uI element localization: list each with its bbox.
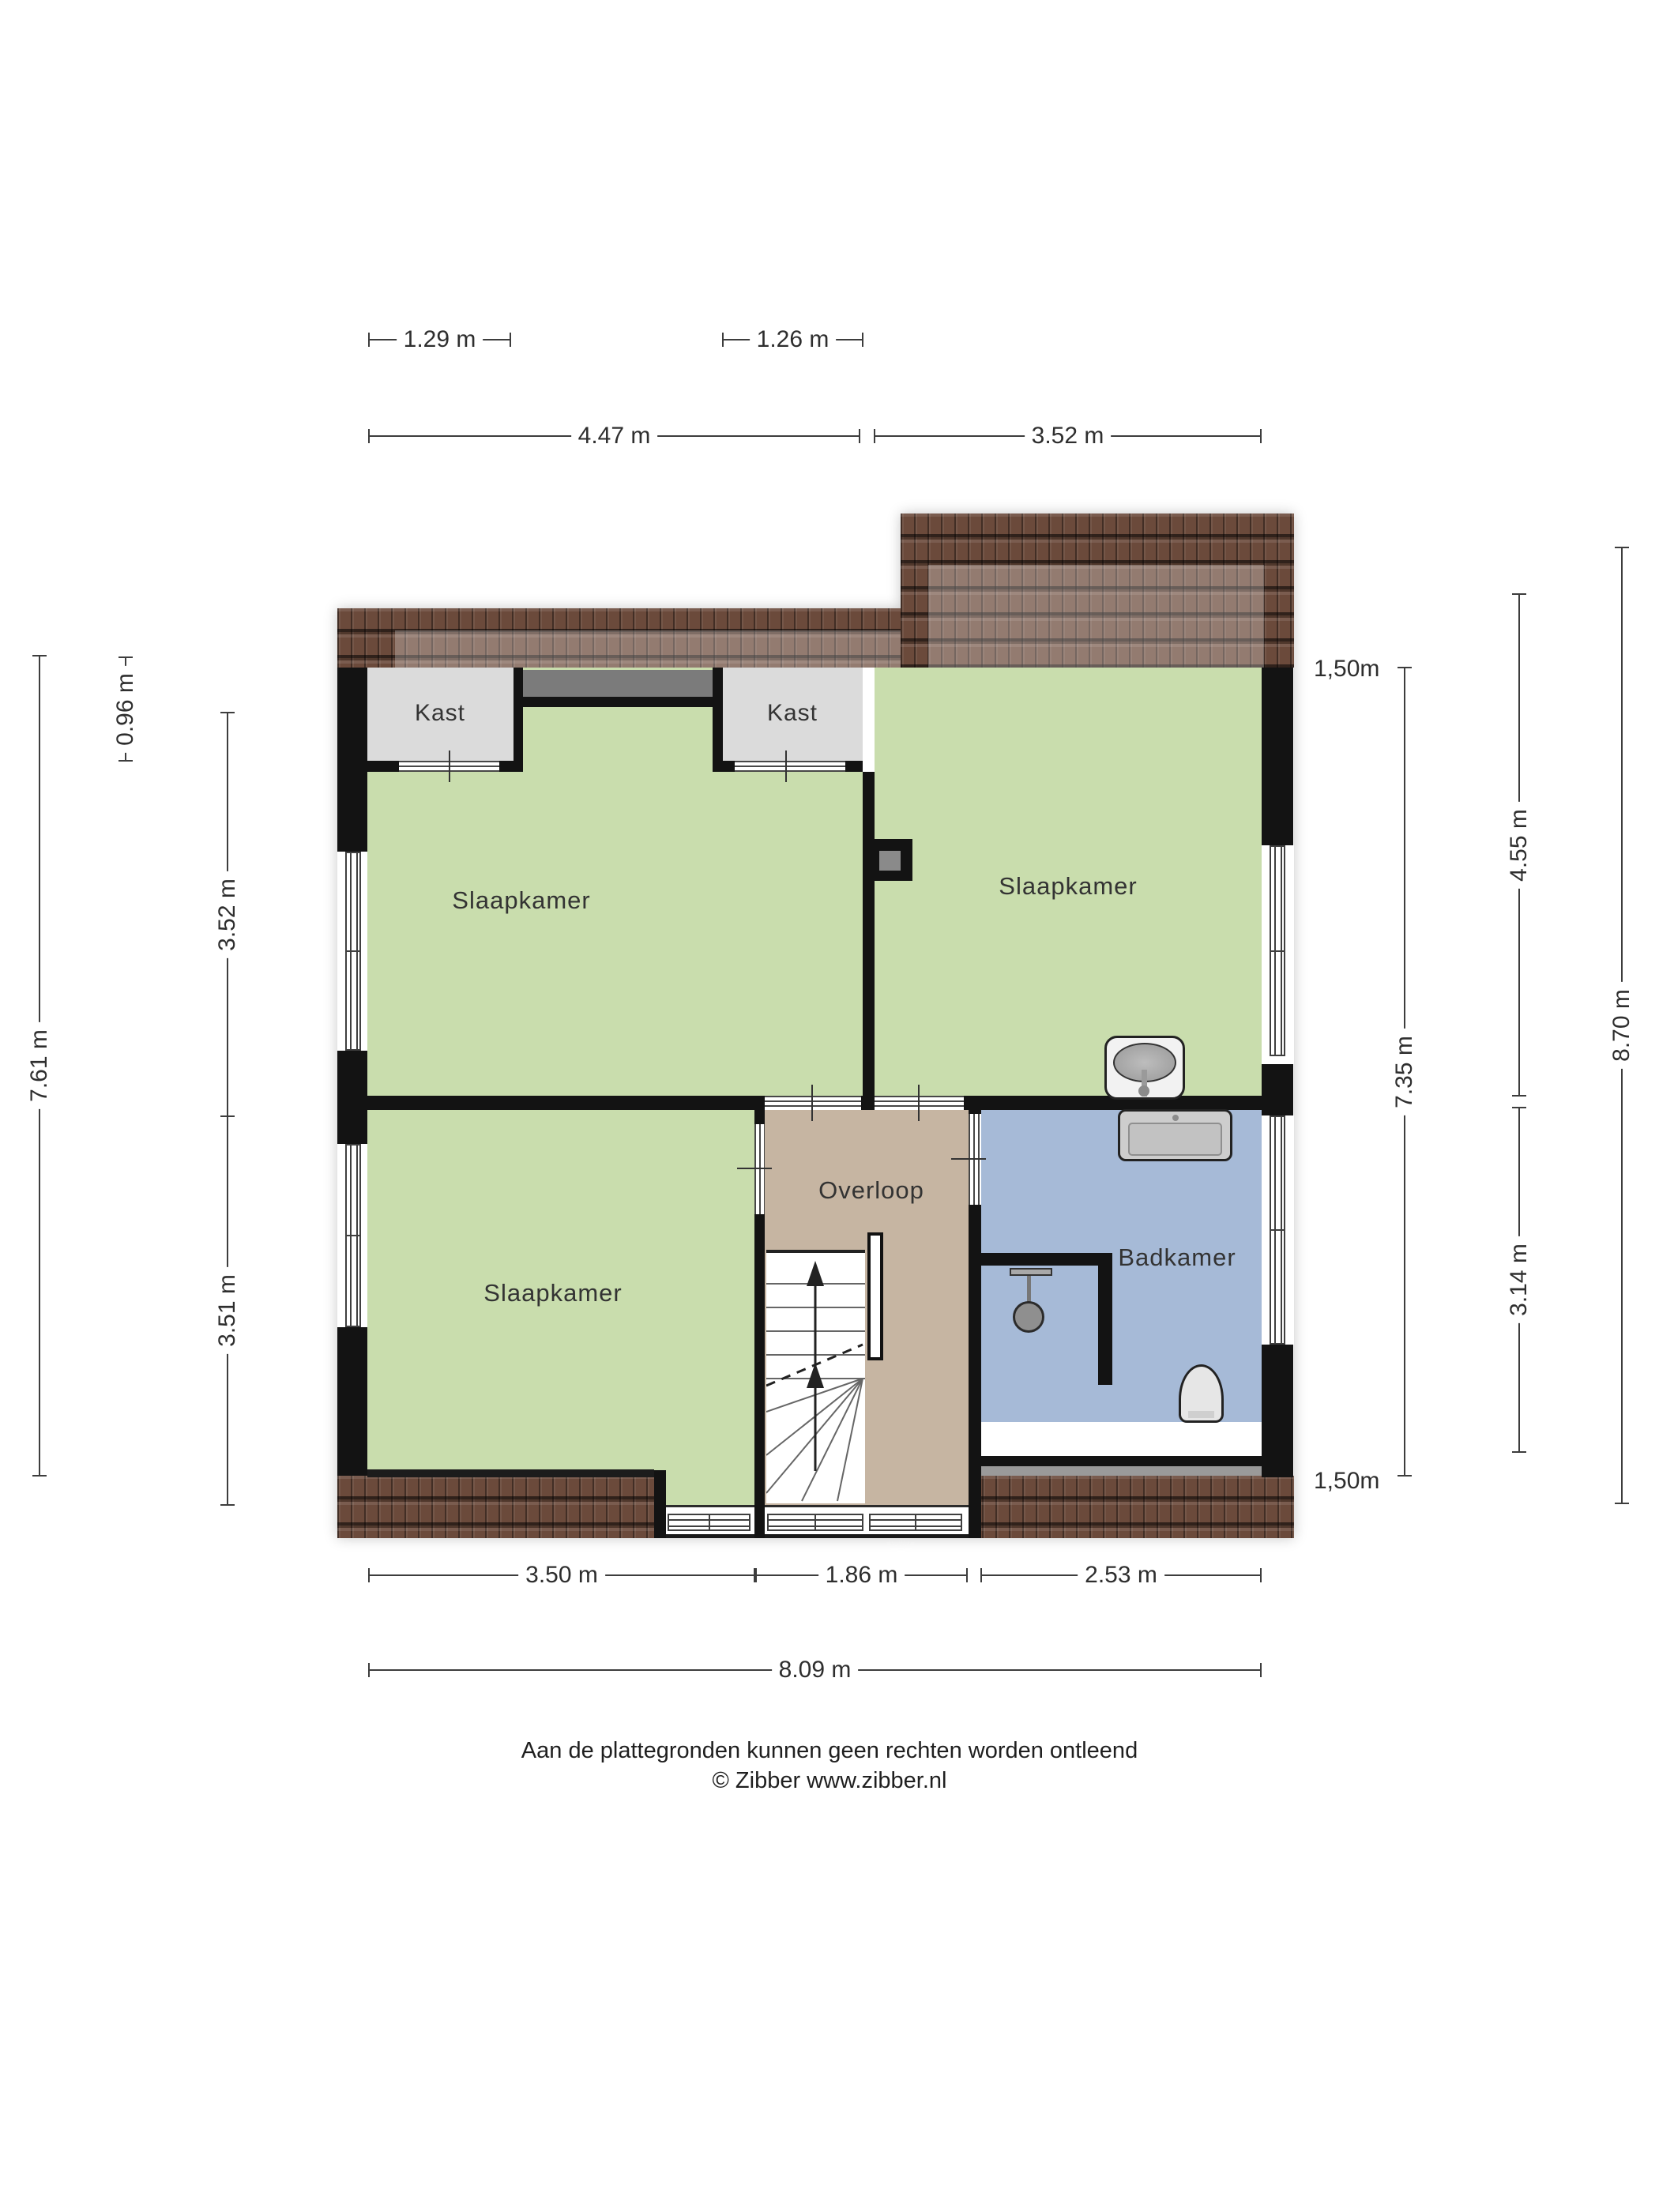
staircase: [766, 1250, 865, 1503]
room-label-bathroom: Badkamer: [1118, 1243, 1236, 1272]
wall-between-top-bedrooms: [863, 772, 875, 1104]
stair-railing: [867, 1232, 883, 1360]
door-bedroom-top-left-tick: [811, 1085, 813, 1121]
copyright-text: © Zibber www.zibber.nl: [0, 1768, 1659, 1794]
disclaimer-text: Aan de plattegronden kunnen geen rechten…: [0, 1738, 1659, 1764]
room-bedroom-bottom-left-extension: [666, 1110, 754, 1505]
chimney-flue: [879, 851, 901, 871]
dim-left-upper-room: 3.52 m: [227, 713, 228, 1116]
room-label-closet-right: Kast: [767, 700, 818, 727]
dim-closet-depth: 0.96 m: [125, 657, 126, 761]
door-closet-right: [735, 761, 845, 772]
shower-arm: [1027, 1276, 1031, 1304]
dim-label: 3.50 m: [518, 1561, 605, 1589]
dim-label: 3.14 m: [1505, 1236, 1533, 1323]
washbasin-drain: [1138, 1085, 1149, 1097]
dim-left-total-height: 7.61 m: [39, 656, 40, 1476]
window-right-lower: [1270, 1115, 1285, 1345]
vanity-basin: [1128, 1123, 1222, 1156]
roof-strip-bottom-right: [969, 1476, 1294, 1538]
dim-bottom-bathroom: 2.53 m: [981, 1574, 1261, 1576]
window-bottom-middle: [767, 1514, 863, 1531]
wall-right-outer-bottom: [1262, 1345, 1293, 1477]
dim-closet-left-width: 1.29 m: [369, 339, 510, 340]
wall-closet-left-door-b: [499, 761, 513, 772]
door-closet-left-tick: [449, 750, 450, 782]
shower-mixer: [1010, 1268, 1052, 1276]
room-label-landing: Overloop: [818, 1176, 924, 1205]
door-bedroom-top-right-tick: [918, 1085, 920, 1121]
roof-overlay-top-left: [395, 630, 901, 668]
dim-label: 7.35 m: [1390, 1029, 1419, 1115]
wall-closet-left-door-a: [367, 761, 399, 772]
floor-plan-canvas: Kast Kast Slaapkamer Slaapkamer Slaapkam…: [0, 0, 1659, 2212]
headroom-label-bottom: 1,50m: [1314, 1468, 1379, 1495]
wall-line-bedroom-bottom: [367, 1469, 654, 1477]
room-label-bedroom-top-right: Slaapkamer: [999, 872, 1137, 901]
dim-label: 3.52 m: [213, 871, 242, 958]
wall-closet-right-door-a: [723, 761, 735, 772]
door-bedroom-bottom-left-tick: [737, 1168, 772, 1169]
wall-bathroom-bottom: [981, 1456, 1262, 1466]
window-bottom-right: [869, 1514, 962, 1531]
room-label-bedroom-bottom-left: Slaapkamer: [483, 1279, 622, 1307]
dim-right-total-height: 8.70 m: [1621, 547, 1623, 1503]
roof-strip-bottom-left: [337, 1476, 654, 1538]
dim-top-left-section: 4.47 m: [369, 435, 860, 437]
dim-top-right-section: 3.52 m: [875, 435, 1261, 437]
dim-right-lower: 3.14 m: [1518, 1108, 1520, 1452]
vanity-sink: [1118, 1109, 1232, 1161]
window-left-lower: [345, 1144, 361, 1327]
wall-stairwell-left-lower: [754, 1505, 765, 1538]
dim-label: 8.70 m: [1608, 982, 1636, 1069]
toilet-seat-line: [1188, 1411, 1214, 1418]
wall-right-outer-block: [1262, 1064, 1293, 1115]
dim-label: 2.53 m: [1078, 1561, 1164, 1589]
vanity-faucet: [1172, 1115, 1179, 1121]
window-left-upper: [345, 852, 361, 1051]
roof-overlay-top-right: [928, 565, 1264, 668]
roof-void-strip: [523, 670, 713, 697]
dim-closet-right-width: 1.26 m: [723, 339, 863, 340]
door-bedroom-bottom-left: [754, 1124, 765, 1214]
wall-shower-horizontal: [981, 1253, 1112, 1266]
dim-label: 1.26 m: [750, 325, 837, 354]
door-closet-right-tick: [785, 750, 787, 782]
door-bedroom-top-left: [765, 1096, 861, 1110]
wall-right-outer-top: [1262, 668, 1293, 845]
wall-shower-vertical: [1098, 1264, 1112, 1385]
dim-label: 1.29 m: [397, 325, 483, 354]
room-label-closet-left: Kast: [415, 700, 465, 727]
dim-label: 1.86 m: [818, 1561, 905, 1589]
window-right-upper: [1270, 845, 1285, 1056]
wall-left-outer-bottom: [337, 1327, 367, 1476]
wall-closet-left-right: [513, 668, 523, 772]
dim-label: 8.09 m: [772, 1656, 859, 1684]
bathroom-kneewall-strip: [981, 1422, 1262, 1456]
wall-left-outer-top: [337, 668, 367, 852]
dim-right-upper: 4.55 m: [1518, 594, 1520, 1096]
dim-label: 7.61 m: [25, 1022, 54, 1109]
dim-label: 4.55 m: [1505, 802, 1533, 889]
headroom-label-top: 1,50m: [1314, 656, 1379, 683]
dim-label: 3.52 m: [1025, 422, 1112, 450]
wall-stub-bottom-left: [654, 1470, 666, 1538]
dim-label: 0.96 m: [111, 666, 140, 753]
room-label-bedroom-top-left: Slaapkamer: [452, 886, 590, 915]
dim-right-inner-height: 7.35 m: [1404, 668, 1405, 1476]
dim-bottom-total-width: 8.09 m: [369, 1669, 1261, 1671]
window-bottom-left: [668, 1514, 750, 1531]
dim-left-lower-room: 3.51 m: [227, 1116, 228, 1505]
staircase-drawing: [766, 1250, 865, 1503]
dim-label: 3.51 m: [213, 1267, 242, 1354]
roof-shadow-bathroom: [981, 1466, 1262, 1476]
wall-void-bottom: [523, 697, 713, 707]
washbasin: [1104, 1036, 1185, 1100]
wall-closet-right-left: [713, 668, 723, 772]
shower-head-icon: [1013, 1301, 1044, 1333]
wall-closet-right-door-b: [845, 761, 863, 772]
dim-bottom-landing: 1.86 m: [756, 1574, 967, 1576]
dim-label: 4.47 m: [571, 422, 658, 450]
dim-bottom-left-room: 3.50 m: [369, 1574, 754, 1576]
door-bathroom-tick: [951, 1158, 986, 1160]
